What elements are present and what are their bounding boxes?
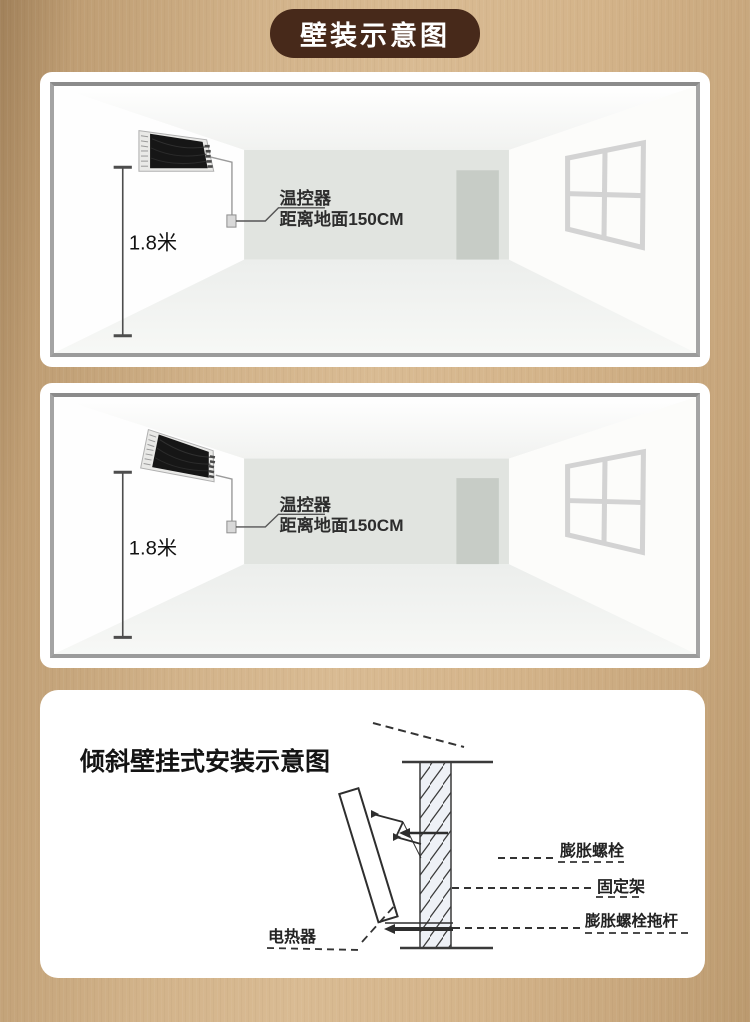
page-title: 壁装示意图: [270, 9, 480, 58]
ceiling-dashed-line: [373, 723, 464, 747]
thermostat-label-line2: 距离地面150CM: [279, 515, 403, 535]
label-bolt-rod: 膨胀螺栓拖杆: [585, 911, 679, 930]
underline-heater: [267, 948, 360, 950]
height-label: 1.8米: [129, 538, 177, 560]
door: [456, 170, 498, 259]
room-scene-top: 温控器 距离地面150CM 1.8米: [54, 86, 696, 353]
heater-side-view: [339, 788, 397, 922]
wall-hatch: [420, 762, 451, 948]
diagram-title: 倾斜壁挂式安装示意图: [79, 747, 330, 776]
thermostat-label-line2: 距离地面150CM: [279, 209, 403, 229]
height-label: 1.8米: [129, 231, 177, 254]
thermostat: [227, 521, 236, 533]
expansion-bolt-arrow: [399, 828, 410, 838]
diagram-area: 倾斜壁挂式安装示意图: [40, 690, 705, 978]
label-fixing-bracket: 固定架: [597, 877, 645, 896]
panel-section-diagram: 倾斜壁挂式安装示意图: [40, 690, 705, 978]
room-frame-middle: 温控器 距离地面150CM 1.8米: [50, 393, 700, 658]
label-expansion-bolt: 膨胀螺栓: [560, 841, 625, 860]
panel-tilted-mount: 温控器 距离地面150CM 1.8米: [40, 383, 710, 668]
panel-horizontal-mount: 温控器 距离地面150CM 1.8米: [40, 72, 710, 367]
thermostat-label-line1: 温控器: [279, 188, 331, 208]
label-heater: 电热器: [268, 927, 317, 946]
section-diagram: 倾斜壁挂式安装示意图: [40, 690, 705, 978]
room-frame-top: 温控器 距离地面150CM 1.8米: [50, 82, 700, 357]
bracket-pin-top: [371, 810, 379, 818]
room-scene-middle: 温控器 距离地面150CM 1.8米: [54, 397, 696, 654]
thermostat-label-line1: 温控器: [279, 495, 332, 515]
bolt-rod-arrow: [384, 924, 395, 934]
thermostat: [227, 215, 236, 227]
door: [456, 478, 498, 564]
